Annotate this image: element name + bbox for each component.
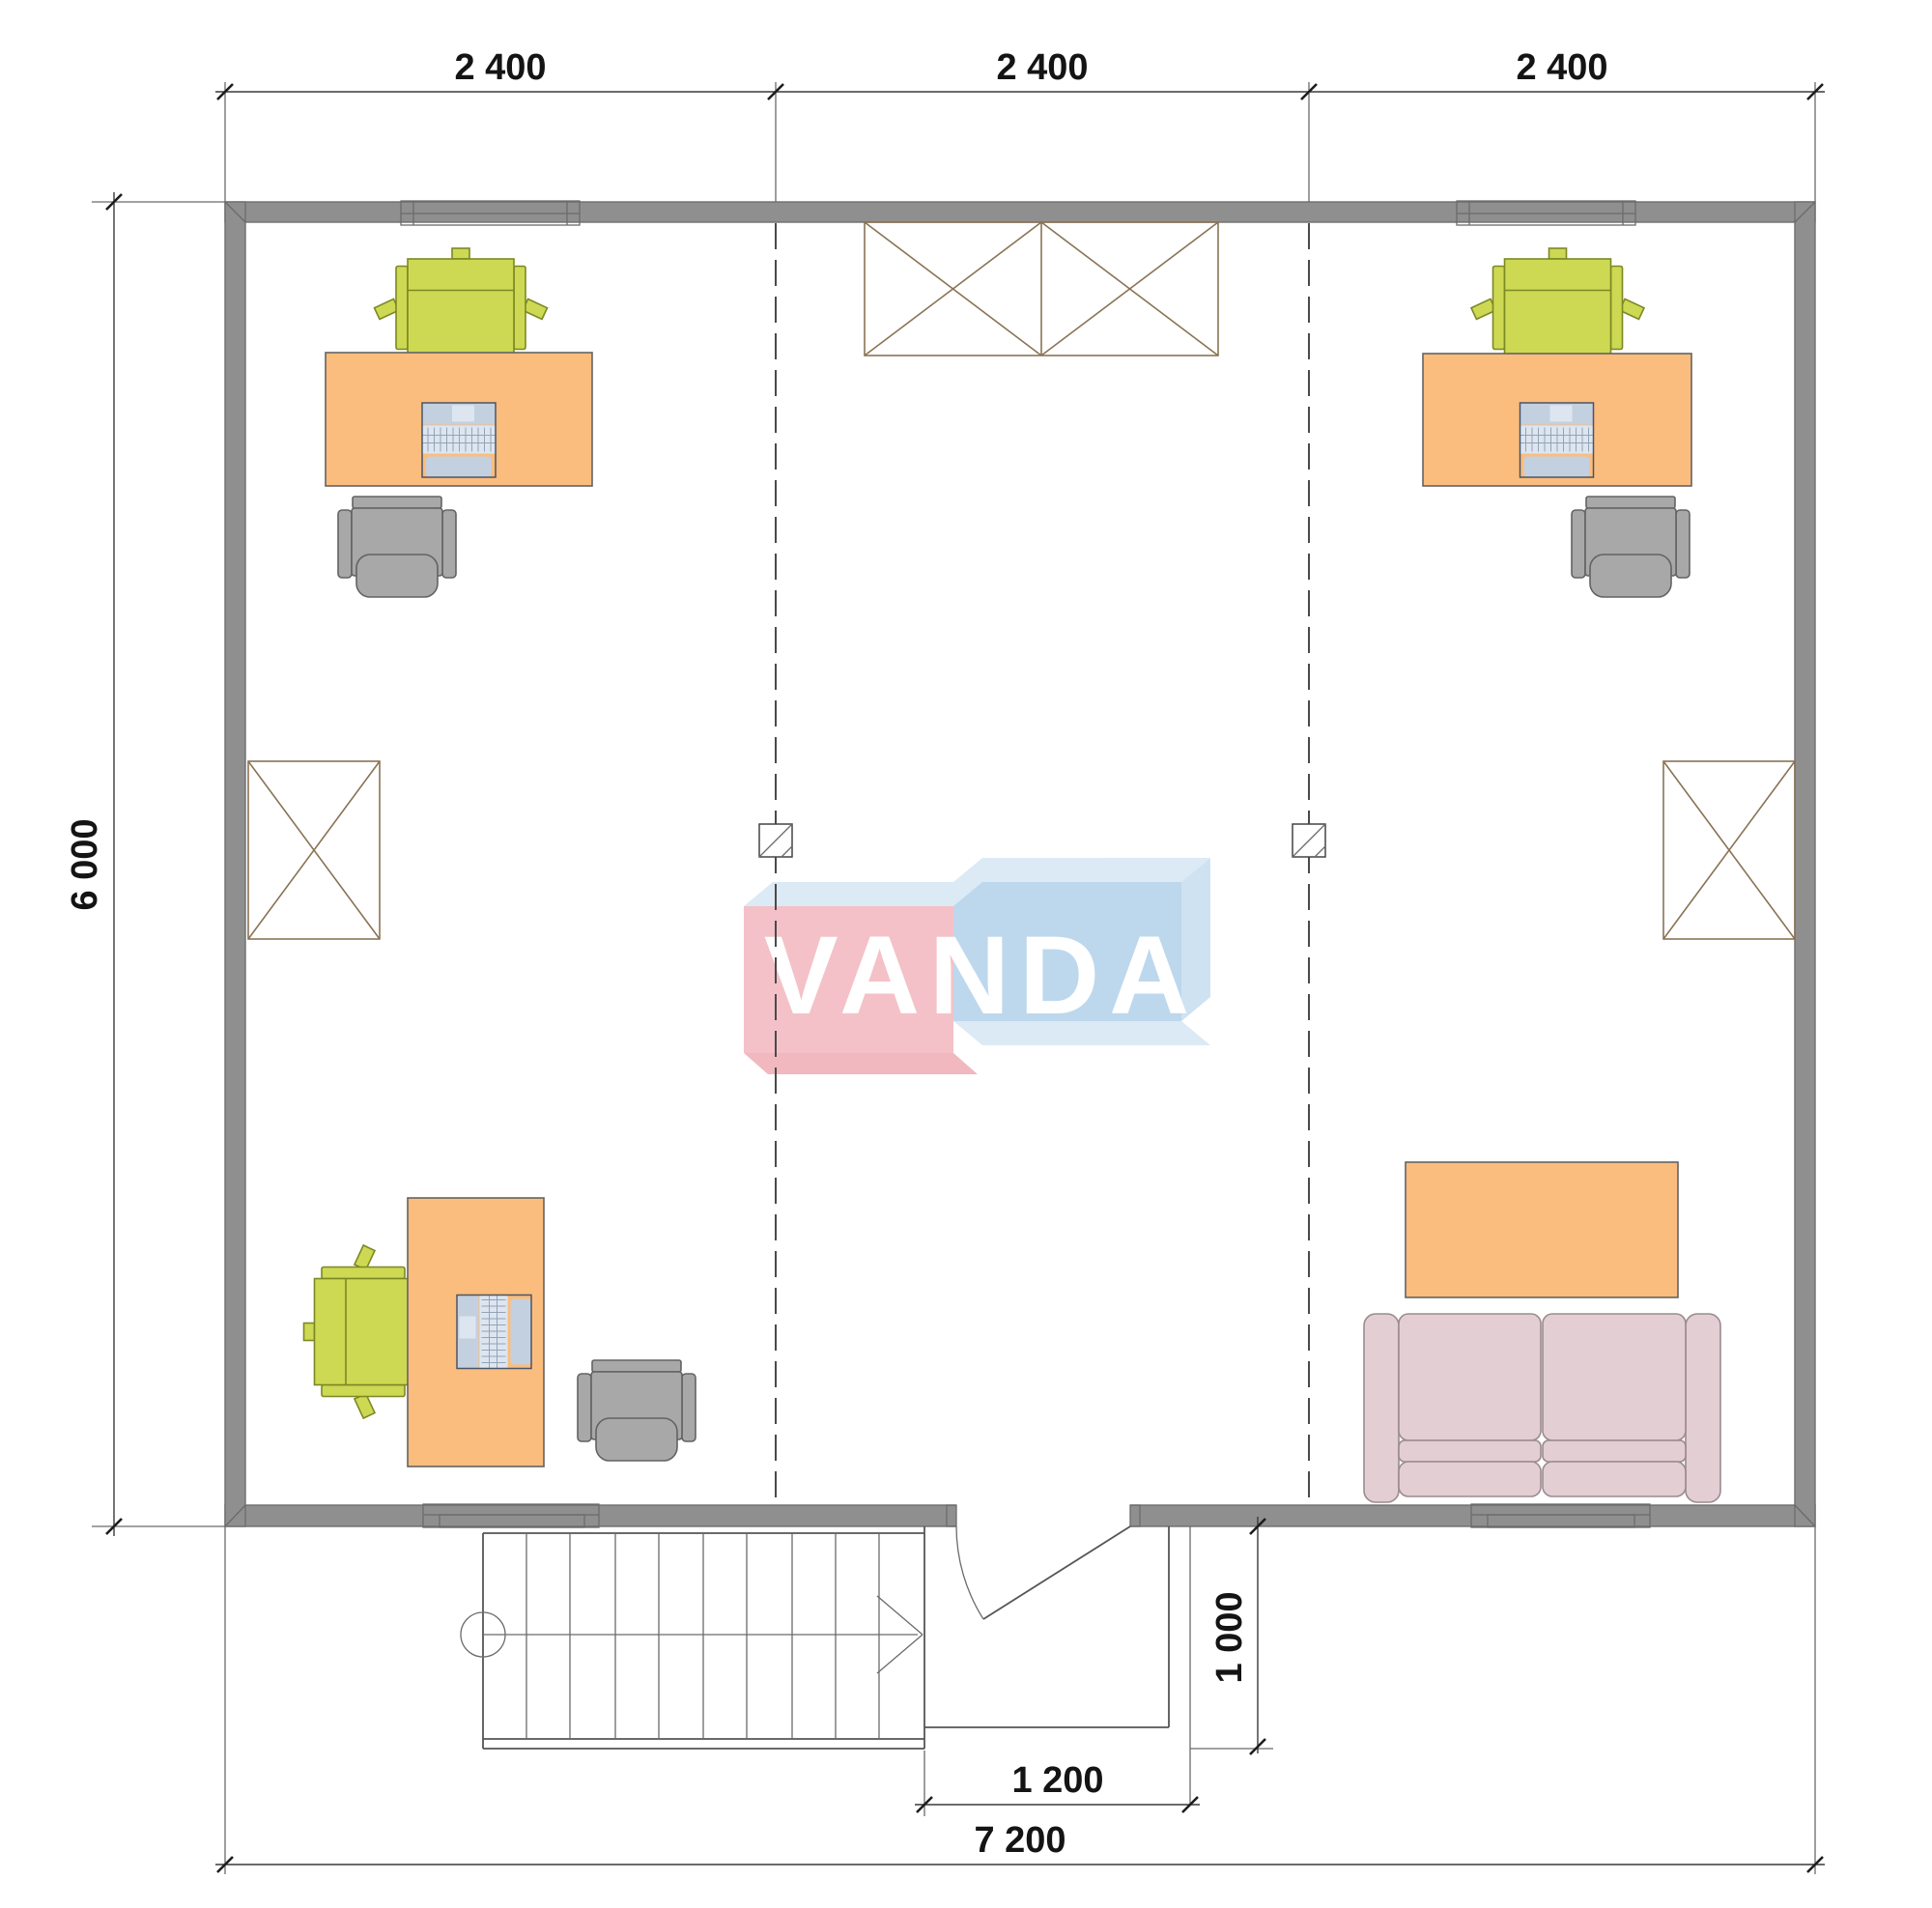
wall-top	[225, 202, 1815, 222]
coffee-table	[1406, 1162, 1678, 1297]
sofa-seat	[1543, 1440, 1686, 1462]
dim-label-top-3: 2 400	[1516, 47, 1607, 88]
structural-column-left	[759, 824, 792, 857]
floor-plan-drawing: VANDA	[0, 0, 1932, 1908]
dim-label-top-2: 2 400	[996, 47, 1088, 88]
sofa-seat	[1399, 1440, 1541, 1462]
wall-left	[225, 202, 245, 1526]
visitor-chair	[1572, 497, 1690, 597]
sofa-back-cushion	[1399, 1314, 1541, 1440]
logo-pink-bottom-face	[744, 1053, 978, 1074]
desktop-computer	[1520, 403, 1594, 477]
logo-blue-top-face	[953, 858, 1210, 882]
floor-plan-canvas: VANDA	[0, 0, 1932, 1908]
door-opening	[956, 1504, 1130, 1527]
lounge-area	[1364, 1162, 1720, 1502]
laptop	[457, 1296, 531, 1369]
sofa-back-cushion	[1543, 1314, 1686, 1440]
visitor-chair	[338, 497, 456, 597]
dim-label-total-width: 7 200	[974, 1820, 1065, 1861]
wall-right	[1795, 202, 1815, 1526]
dim-label-top-1: 2 400	[454, 47, 546, 88]
structural-column-right	[1293, 824, 1325, 857]
dim-label-entrance-width: 1 200	[1011, 1760, 1103, 1801]
dim-label-entrance-depth: 1 000	[1209, 1591, 1250, 1683]
sofa-front-cushion	[1543, 1462, 1686, 1496]
sofa	[1364, 1314, 1720, 1502]
sofa-arm-right	[1686, 1314, 1720, 1502]
sofa-front-cushion	[1399, 1462, 1541, 1496]
sofa-arm-left	[1364, 1314, 1399, 1502]
desktop-computer	[422, 403, 496, 477]
dim-label-height: 6 000	[65, 818, 105, 910]
visitor-chair	[578, 1360, 696, 1461]
logo-text: VANDA	[764, 914, 1199, 1038]
logo-pink-top-face	[744, 882, 982, 906]
